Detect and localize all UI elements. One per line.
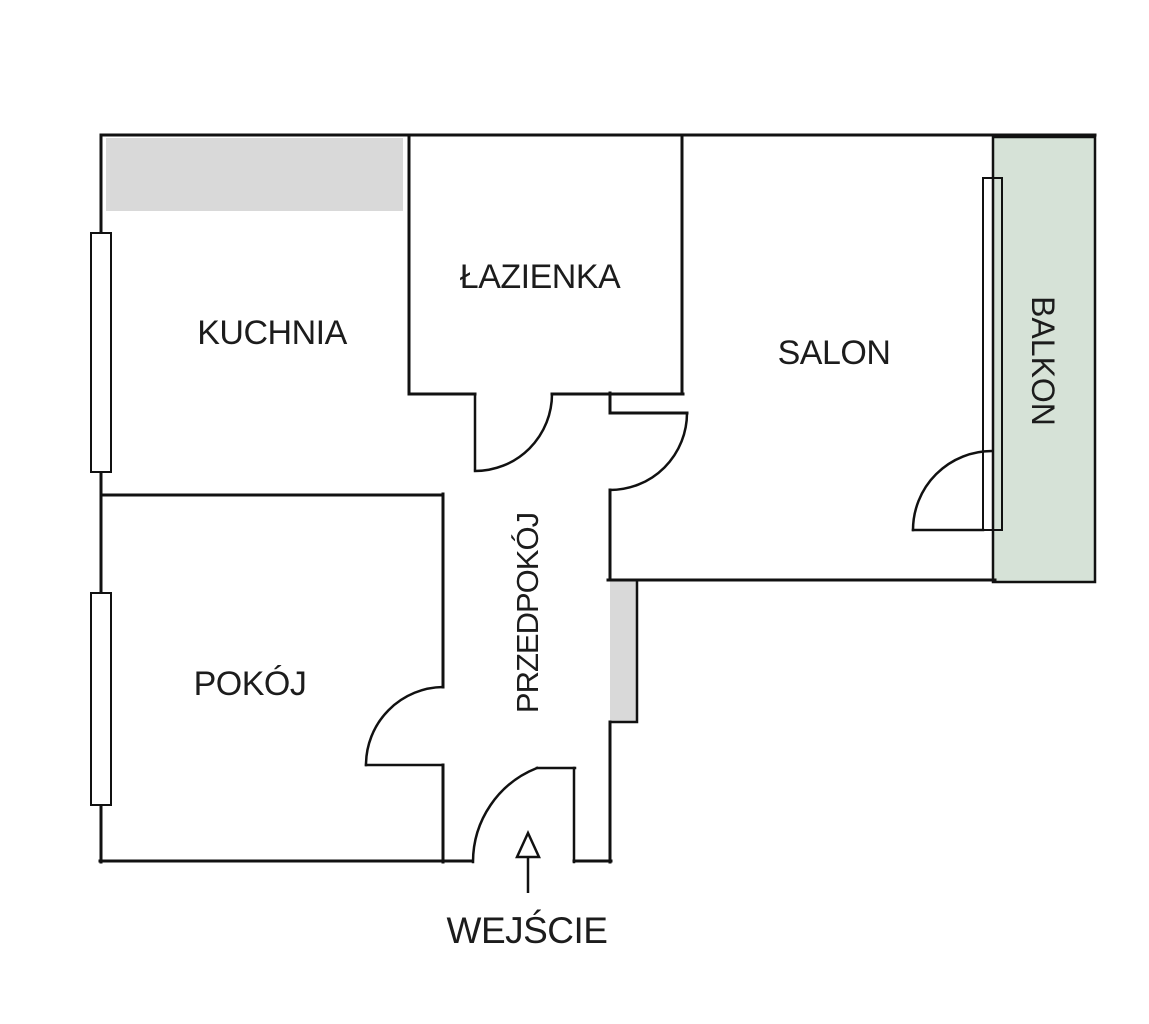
- floor-plan-page: KUCHNIA ŁAZIENKA SALON POKÓJ PRZEDPOKÓJ …: [0, 0, 1149, 1024]
- floor-plan-canvas: KUCHNIA ŁAZIENKA SALON POKÓJ PRZEDPOKÓJ …: [0, 0, 1149, 1024]
- salon-label: SALON: [778, 334, 891, 372]
- kitchen-counter: [106, 138, 403, 211]
- kuchnia-label: KUCHNIA: [197, 314, 347, 352]
- balkon-label: BALKON: [1025, 296, 1061, 426]
- pokoj-label: POKÓJ: [194, 665, 307, 703]
- lazienka-label: ŁAZIENKA: [460, 258, 621, 296]
- wejscie-label: WEJŚCIE: [447, 909, 608, 951]
- kitchen-window: [91, 233, 111, 472]
- przedpokoj-label: PRZEDPOKÓJ: [510, 513, 545, 713]
- hallway-wardrobe: [610, 581, 637, 721]
- pokoj-window: [91, 593, 111, 805]
